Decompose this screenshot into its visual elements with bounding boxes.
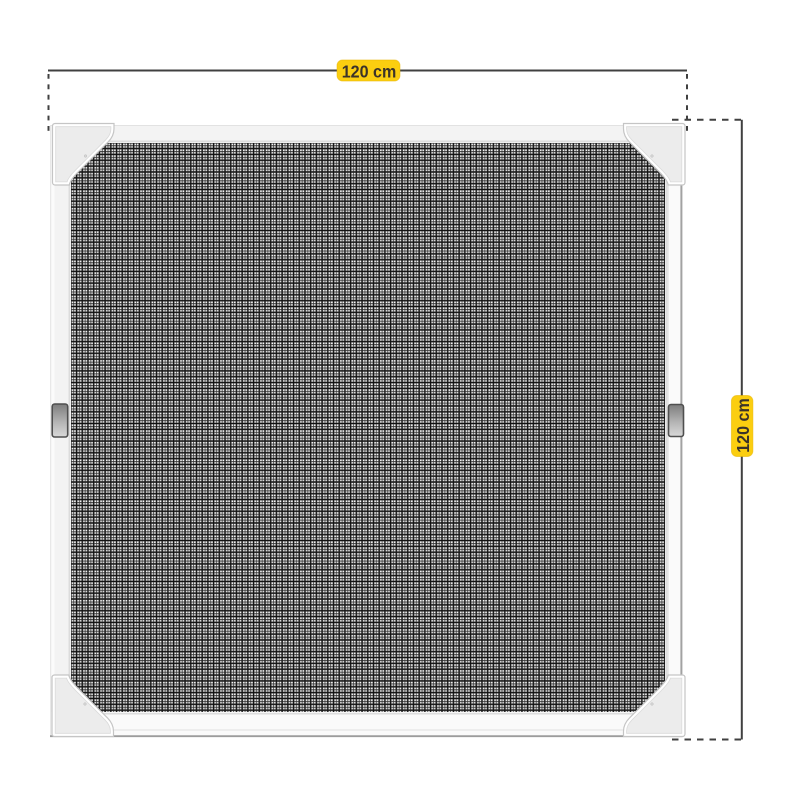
svg-text:120 cm: 120 cm [342, 61, 397, 81]
svg-text:120 cm: 120 cm [733, 398, 753, 453]
